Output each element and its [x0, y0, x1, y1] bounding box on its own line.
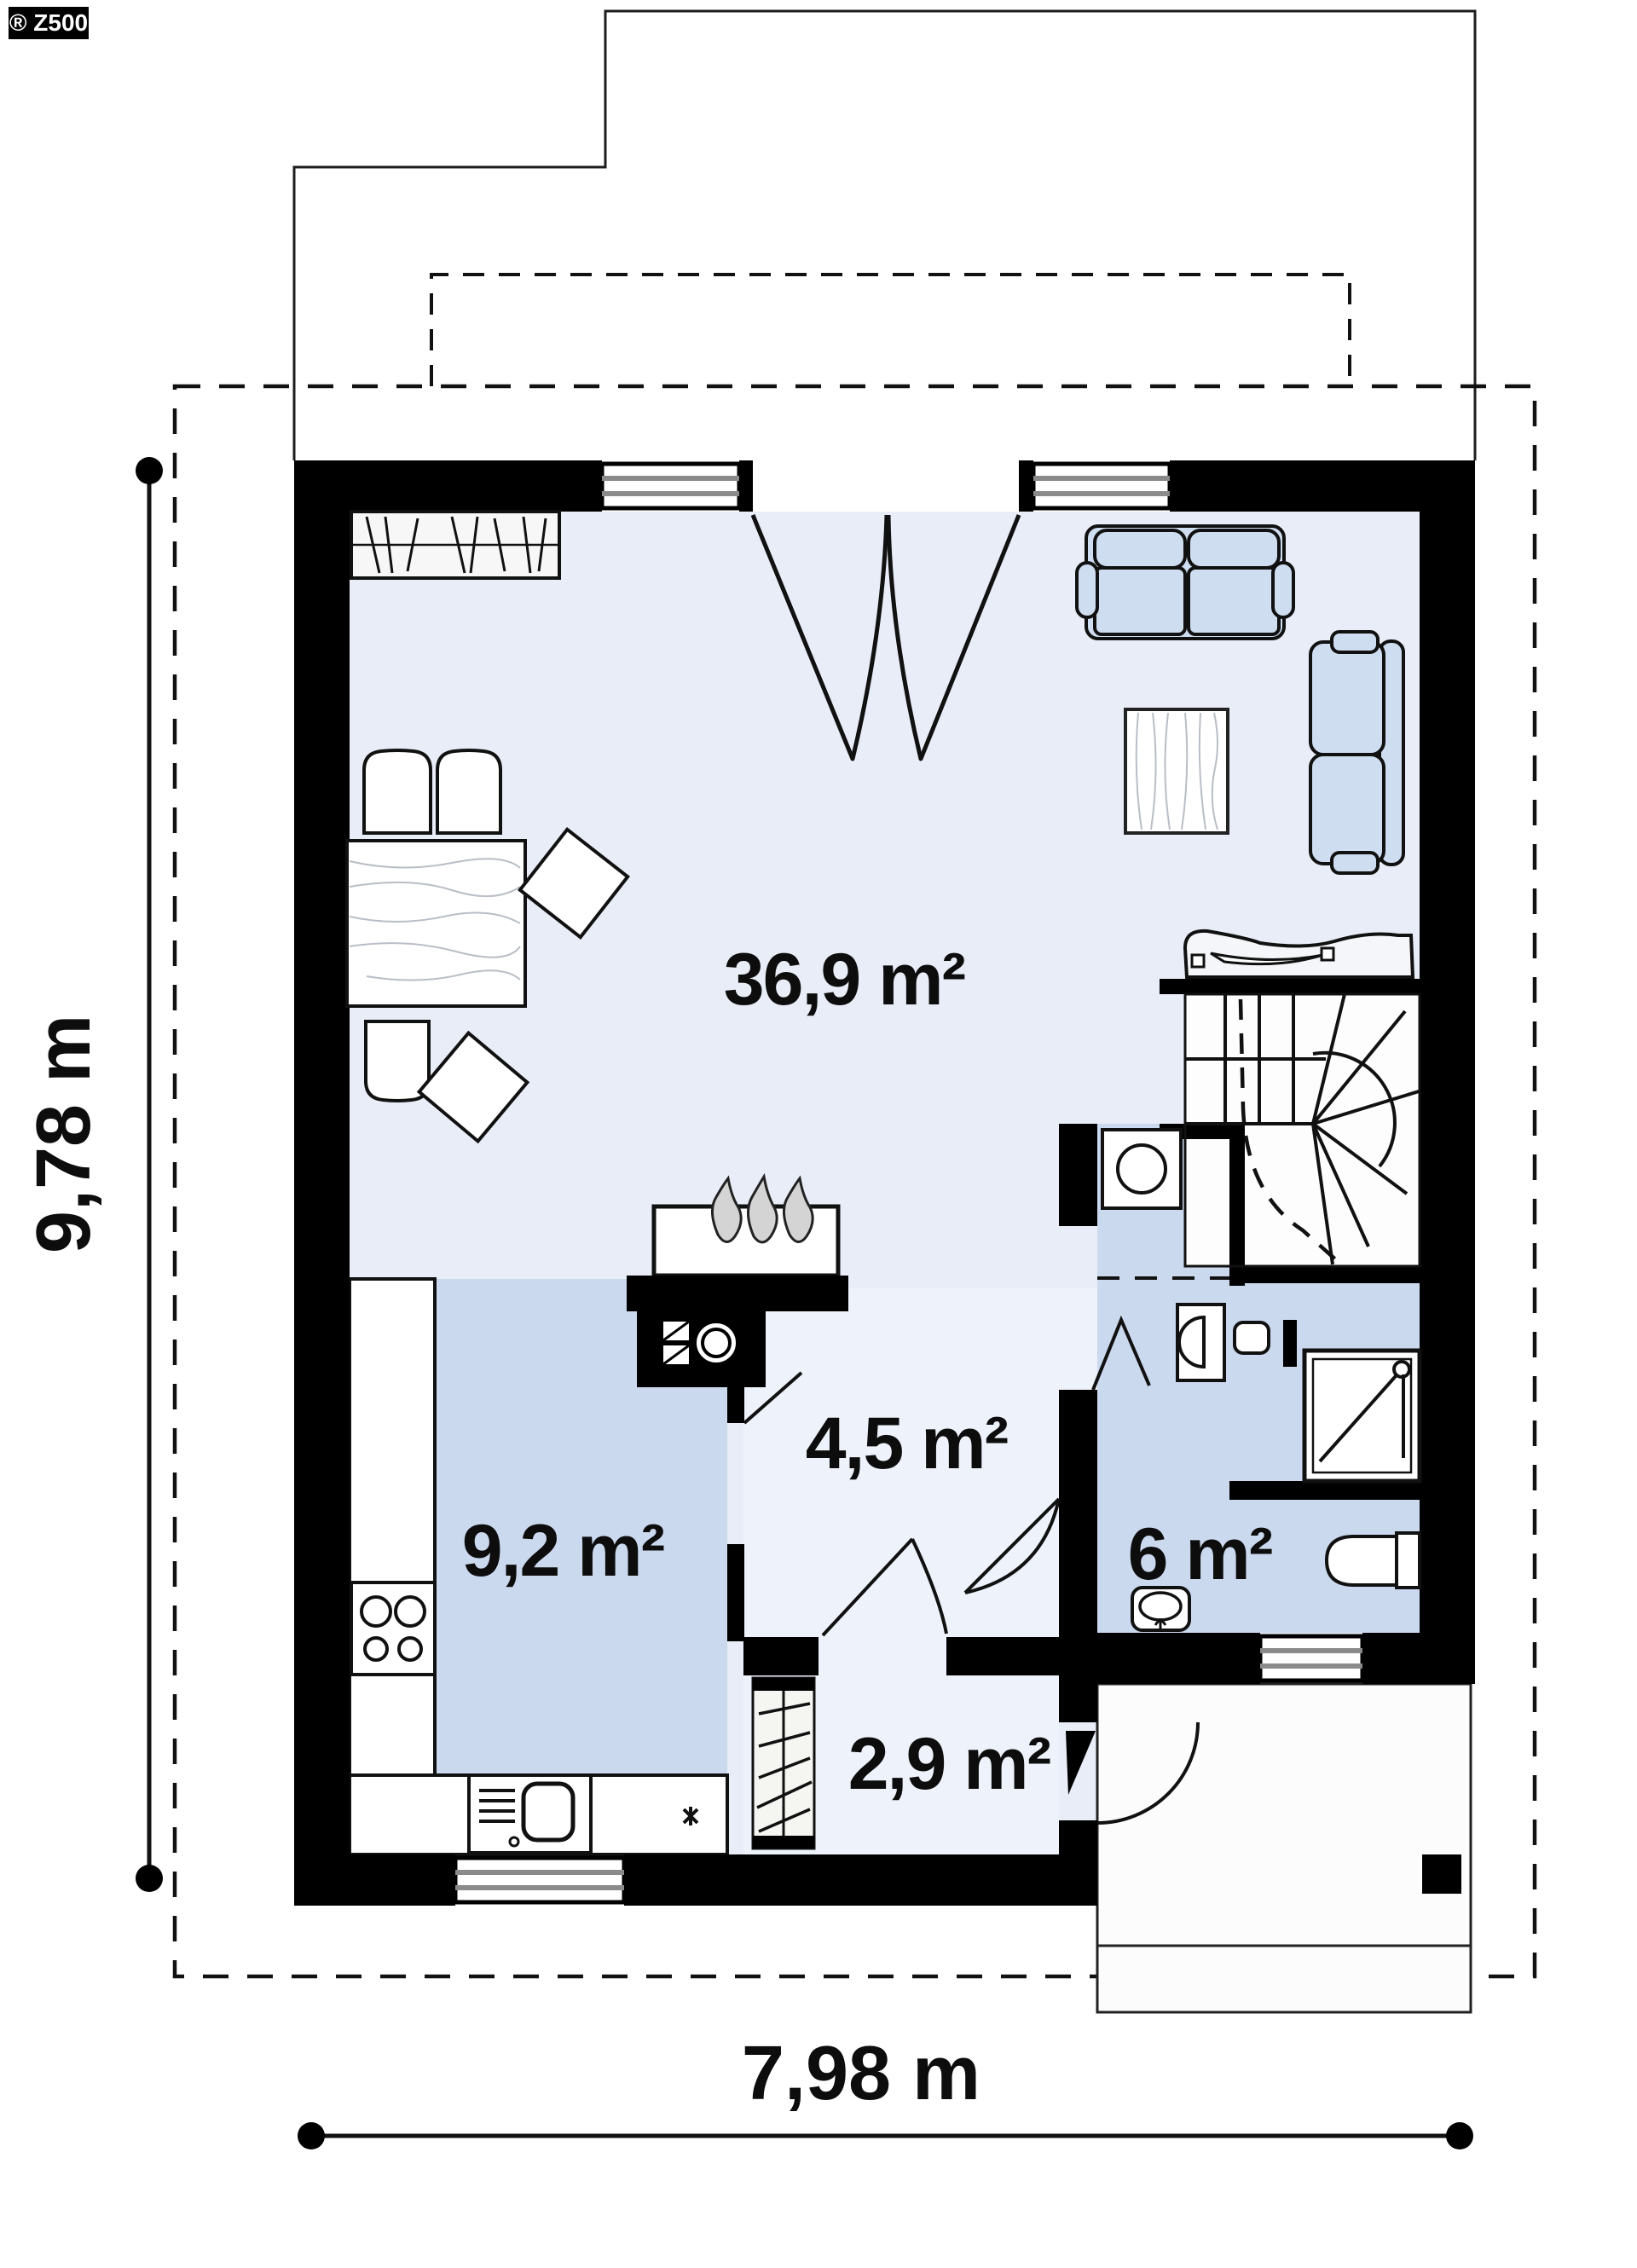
porch-pillar	[1422, 1854, 1461, 1894]
vestibule-wardrobe-icon	[753, 1678, 814, 1849]
dimension-height-label: 9,78 m	[21, 1015, 107, 1253]
entrance-porch	[1097, 1684, 1471, 2012]
upper-storey-outline	[294, 11, 1475, 460]
dimension-width-label: 7,98 m	[742, 2031, 980, 2116]
flame-icon	[712, 1177, 813, 1242]
kitchen-sink-icon	[469, 1775, 591, 1853]
dimension-height: 9,78 m	[21, 457, 163, 1892]
sofa-icon	[1077, 526, 1293, 639]
window-icon	[1033, 464, 1170, 508]
window-icon	[1260, 1636, 1362, 1681]
chaise-sofa-icon	[1310, 632, 1403, 873]
floor-plan-drawing: 36,9 m² 9,2 m² 4,5 m² 6 m² 2,9 m² 9,78 m…	[0, 0, 1637, 2268]
window-icon	[602, 464, 739, 508]
room-label-hall: 4,5 m²	[806, 1403, 1008, 1484]
wardrobe-icon	[351, 512, 559, 578]
cooktop-icon	[351, 1582, 435, 1675]
brand-logo-text: ® Z500	[9, 9, 88, 36]
porch-slab	[1097, 1684, 1471, 2012]
room-label-vestibule: 2,9 m²	[848, 1723, 1050, 1805]
kitchen-counter-left	[350, 1279, 435, 1854]
floor-plan-page: 36,9 m² 9,2 m² 4,5 m² 6 m² 2,9 m² 9,78 m…	[0, 0, 1637, 2268]
room-label-living: 36,9 m²	[724, 939, 965, 1021]
room-label-kitchen: 9,2 m²	[462, 1510, 664, 1592]
brand-logo: ® Z500	[9, 7, 89, 39]
shower-icon	[1304, 1351, 1420, 1481]
balcony-dashed-outline	[431, 275, 1350, 386]
rug-icon	[1125, 709, 1228, 833]
toilet-icon	[1327, 1533, 1420, 1588]
room-label-bathroom: 6 m²	[1128, 1513, 1272, 1595]
dimension-width: 7,98 m	[298, 2031, 1473, 2149]
window-icon	[455, 1858, 624, 1902]
